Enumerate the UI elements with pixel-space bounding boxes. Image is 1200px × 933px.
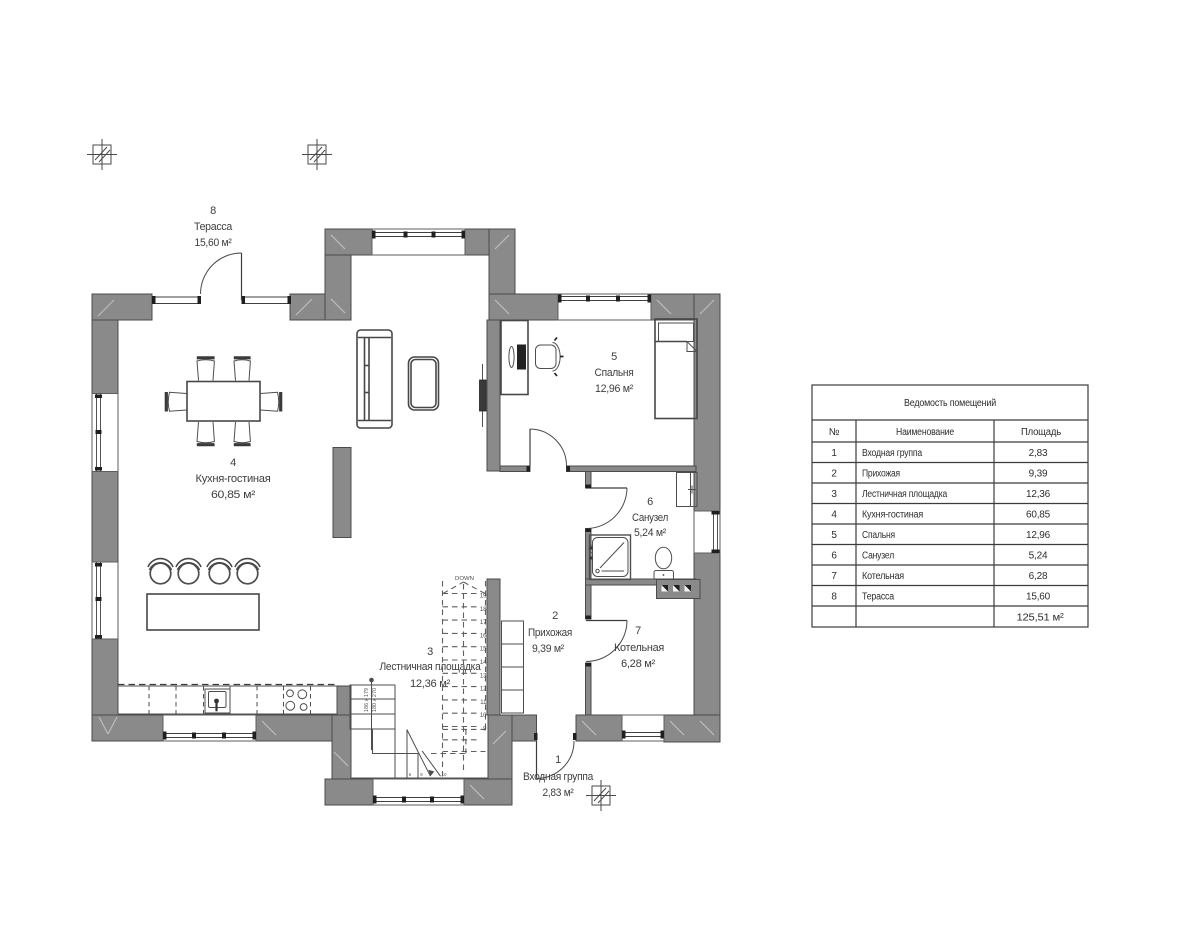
svg-text:2,83: 2,83	[1029, 448, 1048, 459]
svg-text:5,24 м²: 5,24 м²	[634, 527, 667, 539]
svg-text:8: 8	[831, 592, 837, 603]
svg-text:15,60: 15,60	[1026, 592, 1051, 603]
svg-text:12,36: 12,36	[1026, 489, 1051, 500]
svg-text:6: 6	[831, 551, 837, 562]
svg-text:6,28 м²: 6,28 м²	[621, 658, 656, 670]
svg-text:10: 10	[441, 772, 447, 777]
svg-text:Терасса: Терасса	[194, 221, 233, 233]
svg-text:14: 14	[480, 660, 487, 666]
svg-text:18: 18	[480, 607, 487, 613]
svg-text:Котельная: Котельная	[614, 642, 664, 654]
svg-text:2: 2	[552, 610, 558, 622]
svg-text:1: 1	[555, 754, 561, 766]
svg-text:Входная группа: Входная группа	[862, 448, 923, 459]
svg-text:Ведомость помещений: Ведомость помещений	[904, 398, 996, 409]
svg-text:12: 12	[480, 687, 487, 693]
svg-text:№: №	[829, 427, 840, 438]
svg-text:12,36 м²: 12,36 м²	[410, 678, 451, 690]
svg-text:125,51 м²: 125,51 м²	[1017, 613, 1065, 624]
svg-text:9,39: 9,39	[1029, 469, 1048, 480]
svg-text:5: 5	[611, 351, 617, 363]
svg-text:Спальня: Спальня	[862, 530, 895, 541]
svg-text:Кухня-гостиная: Кухня-гостиная	[862, 510, 923, 521]
svg-text:15: 15	[480, 647, 487, 653]
svg-text:186 х 179: 186 х 179	[364, 688, 370, 712]
svg-text:13: 13	[480, 673, 487, 679]
svg-text:Наименование: Наименование	[896, 427, 955, 438]
svg-text:Прихожая: Прихожая	[862, 469, 900, 480]
svg-text:8: 8	[210, 205, 216, 217]
svg-text:Терасса: Терасса	[862, 592, 895, 603]
svg-text:7: 7	[635, 625, 641, 637]
svg-text:Входная группа: Входная группа	[523, 771, 594, 783]
svg-text:Площадь: Площадь	[1021, 427, 1061, 438]
svg-text:Котельная: Котельная	[862, 571, 904, 582]
svg-text:11: 11	[480, 700, 487, 706]
svg-text:4: 4	[831, 510, 837, 521]
svg-text:9,39 м²: 9,39 м²	[532, 643, 565, 655]
svg-text:60,85: 60,85	[1026, 510, 1051, 521]
svg-text:6,28: 6,28	[1029, 571, 1048, 582]
svg-text:60,85 м²: 60,85 м²	[211, 489, 256, 501]
svg-text:Лестничная площадка: Лестничная площадка	[862, 489, 948, 500]
svg-text:19: 19	[480, 594, 487, 600]
svg-text:7: 7	[831, 571, 837, 582]
svg-text:10: 10	[480, 713, 487, 719]
svg-text:Прихожая: Прихожая	[528, 627, 572, 639]
svg-text:6: 6	[647, 496, 653, 508]
svg-text:Кухня-гостиная: Кухня-гостиная	[196, 473, 271, 485]
svg-text:Санузел: Санузел	[862, 551, 894, 562]
svg-text:17: 17	[480, 620, 487, 626]
svg-text:5,24: 5,24	[1029, 551, 1048, 562]
svg-text:2,83 м²: 2,83 м²	[543, 787, 575, 799]
svg-text:12,96: 12,96	[1026, 530, 1051, 541]
svg-text:3: 3	[427, 646, 433, 658]
svg-text:5: 5	[831, 530, 837, 541]
svg-text:15,60 м²: 15,60 м²	[195, 237, 233, 249]
svg-text:Санузел: Санузел	[632, 512, 668, 524]
svg-text:2: 2	[831, 469, 837, 480]
svg-text:12,96 м²: 12,96 м²	[595, 383, 634, 395]
svg-text:3: 3	[831, 489, 837, 500]
svg-text:Лестничная площадка: Лестничная площадка	[380, 661, 482, 673]
svg-text:180 х 270: 180 х 270	[372, 688, 378, 712]
svg-text:DOWN: DOWN	[455, 576, 474, 582]
svg-text:1: 1	[831, 448, 837, 459]
svg-text:4: 4	[230, 457, 236, 469]
svg-text:Спальня: Спальня	[595, 367, 634, 379]
svg-text:16: 16	[480, 633, 487, 639]
